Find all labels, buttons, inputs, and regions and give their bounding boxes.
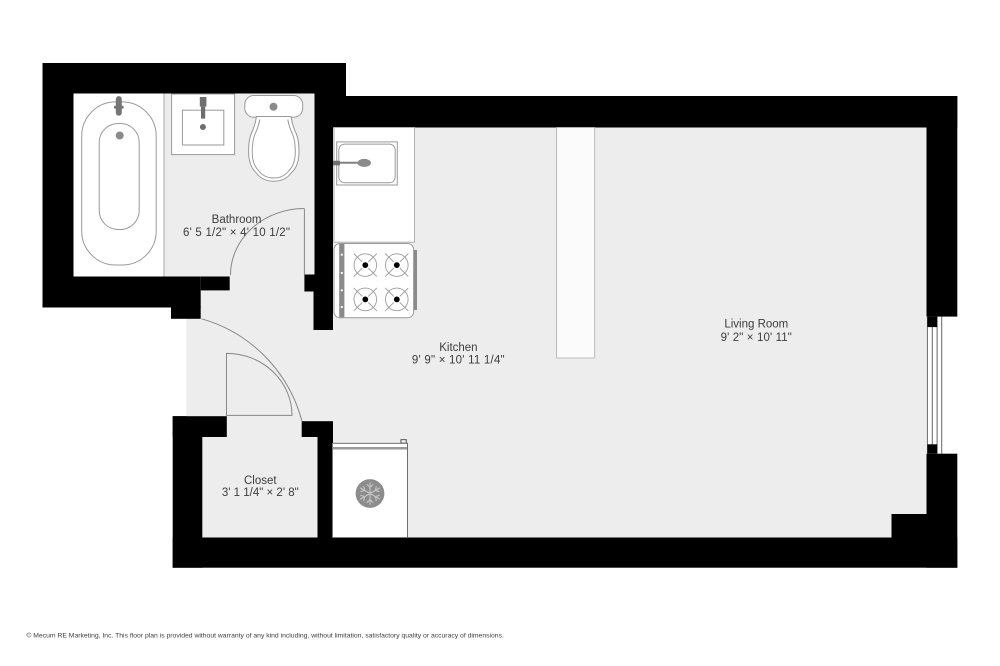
svg-text:© Mecum RE Marketing, Inc. Thi: © Mecum RE Marketing, Inc. This floor pl… (26, 632, 504, 640)
svg-text:Closet: Closet (244, 475, 277, 487)
svg-text:6' 5 1/2" × 4' 10 1/2": 6' 5 1/2" × 4' 10 1/2" (183, 227, 290, 239)
svg-text:Kitchen: Kitchen (439, 342, 477, 354)
svg-text:3' 1 1/4" × 2' 8": 3' 1 1/4" × 2' 8" (222, 487, 299, 499)
svg-text:Living Room: Living Room (724, 319, 788, 331)
svg-text:Bathroom: Bathroom (212, 214, 262, 226)
svg-text:9' 9" × 10' 11 1/4": 9' 9" × 10' 11 1/4" (412, 354, 505, 366)
svg-text:9' 2" × 10' 11": 9' 2" × 10' 11" (721, 332, 792, 344)
